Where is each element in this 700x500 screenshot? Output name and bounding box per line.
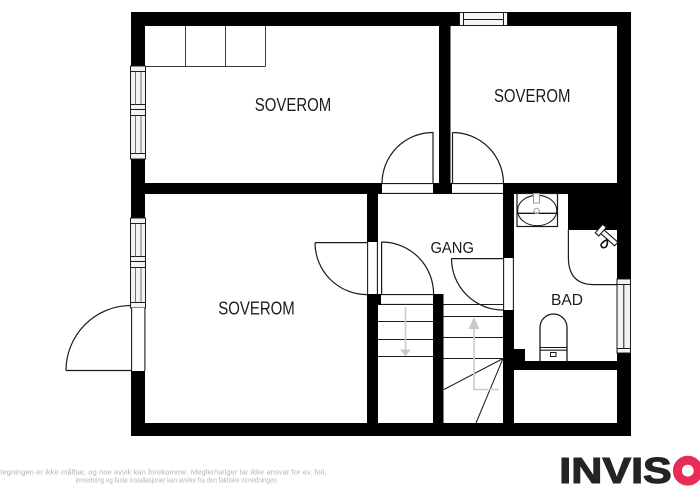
- svg-text:SOVEROM: SOVEROM: [494, 85, 571, 106]
- svg-text:innredning og faste installasj: innredning og faste installasjoner kan a…: [76, 477, 279, 485]
- svg-text:INVIS: INVIS: [559, 450, 672, 491]
- svg-text:SOVEROM: SOVEROM: [218, 298, 295, 319]
- svg-text:SOVEROM: SOVEROM: [255, 94, 332, 115]
- svg-text:lantegningen er ikke målbar, o: lantegningen er ikke målbar, og noe avvi…: [0, 469, 327, 477]
- svg-text:GANG: GANG: [430, 240, 474, 257]
- svg-text:BAD: BAD: [551, 292, 583, 309]
